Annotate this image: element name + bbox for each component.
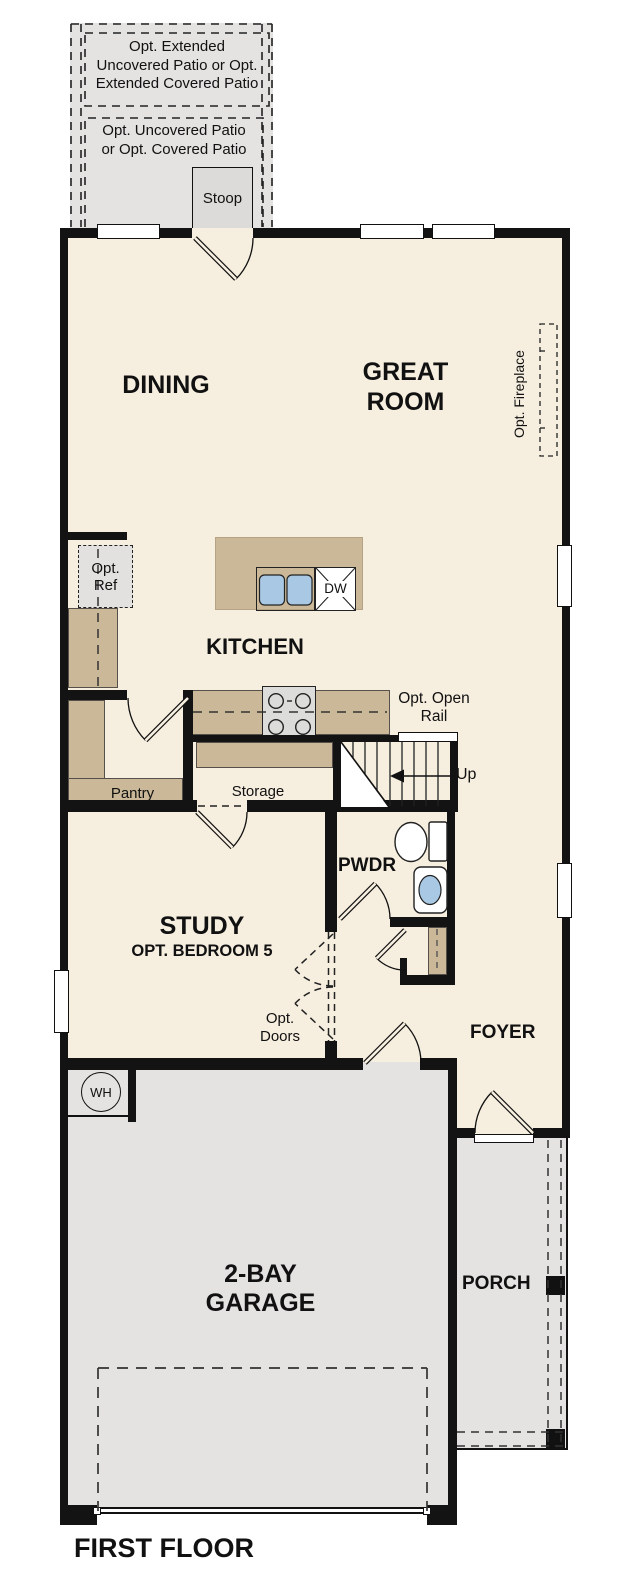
wall-closet-bottom [400,975,447,985]
dishwasher-label: DW [315,567,356,611]
optional-doors-label: Opt. Doors [242,1010,318,1045]
range-cooktop [262,686,316,739]
powder-label: PWDR [338,855,408,877]
pantry-label: Pantry [90,785,175,802]
patio-label: Opt. Uncovered Patio or Opt. Covered Pat… [80,122,268,159]
first-floor-plan: WH [0,0,623,1571]
refrigerator-label: Opt. Ref [78,545,133,608]
study-label: STUDY [117,912,287,941]
wall-stairs-top [341,735,398,742]
wall-right [562,228,570,1138]
patio-extended-label: Opt. Extended Uncovered Patio or Opt. Ex… [80,38,274,94]
closet-shelf [428,927,447,975]
window-top-2 [360,224,424,239]
wall-mid-right [247,800,457,812]
kitchen-label: KITCHEN [190,634,320,659]
porch-post-2 [546,1429,565,1448]
storage-shelf [196,742,333,768]
front-door-threshold [474,1134,534,1143]
wall-garage-bottom-left [60,1505,97,1525]
stoop-label: Stoop [192,190,253,207]
study-option-label: OPT. BEDROOM 5 [107,942,297,961]
fireplace-label: Opt. Fireplace [506,328,532,460]
kitchen-counter-left [68,608,118,688]
garage-door-jamb-left [93,1507,101,1515]
garage-label: 2-BAY GARAGE [178,1260,343,1318]
wall-powder-bottom [390,917,447,927]
up-label: Up [456,766,490,784]
window-top-3 [432,224,495,239]
pantry-shelf-left [68,700,105,780]
wall-pantry-right [183,690,193,812]
island-sink-unit [256,567,315,611]
wall-left [60,228,68,1525]
wall-pantry-top [60,690,127,700]
open-rail [398,732,458,742]
open-rail-label: Opt. Open Rail [386,690,482,725]
dining-label: DINING [116,371,216,400]
wall-water-heater-stub [128,1058,136,1122]
porch-label: PORCH [462,1273,546,1295]
wall-foyer-bottom-left [457,1128,475,1138]
porch-post-1 [546,1276,565,1295]
foyer-label: FOYER [470,1022,554,1044]
wall-study-right-upper [325,812,337,932]
window-left-study [54,970,69,1033]
wall-garage-top-left [60,1058,363,1070]
wall-garage-bottom-right [427,1505,455,1525]
wall-counter-bottom [190,735,341,742]
window-right-1 [557,545,572,607]
storage-label: Storage [213,783,303,800]
plan-title: FIRST FLOOR [74,1533,354,1564]
garage-door-jamb-right [423,1507,431,1515]
wall-garage-right [448,1058,457,1525]
wall-kitchen-stub [60,532,127,540]
garage-door-line [97,1507,427,1514]
wall-foyer-bottom-right [533,1128,570,1138]
water-heater-label: WH [90,1085,112,1100]
great-room-label: GREAT ROOM [343,357,468,417]
main-floor-area [60,228,570,1138]
window-right-2 [557,863,572,918]
wall-powder-right [447,812,455,985]
window-top-1 [97,224,160,239]
water-heater: WH [81,1072,121,1112]
